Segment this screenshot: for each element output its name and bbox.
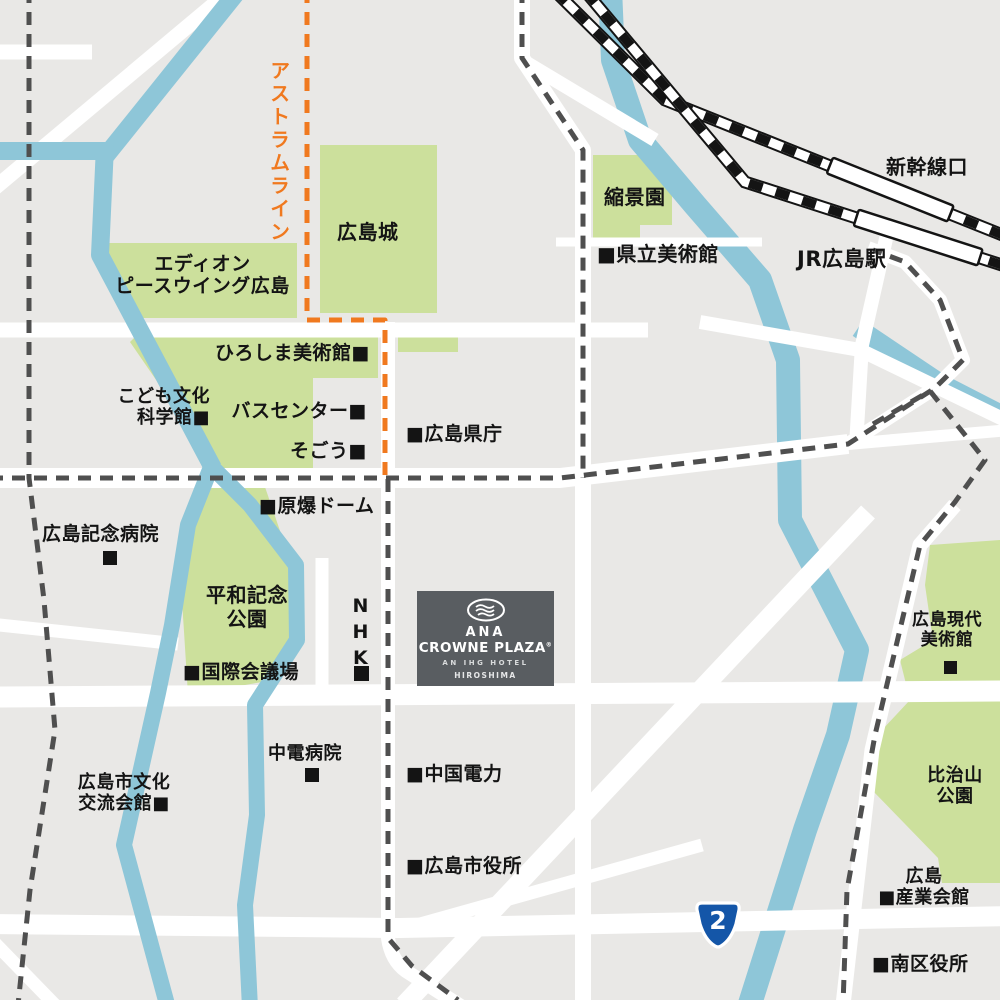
industry-hall-label: 広島 ■産業会館 xyxy=(862,866,986,908)
edion-peace-wing-label: エディオン ピースウイング広島 xyxy=(100,253,305,298)
map-canvas xyxy=(0,0,1000,1000)
hiroshima-castle-label: 広島城 xyxy=(337,221,399,245)
memorial-hospital-label: 広島記念病院 xyxy=(42,523,159,545)
hijiyama-park-label: 比治山 公園 xyxy=(912,765,998,807)
nhk-label: NHK xyxy=(349,595,371,673)
city-hall-label: ■広島市役所 xyxy=(406,855,522,877)
astram-line-label: アストラムライン xyxy=(266,60,290,244)
hiroshima-access-map: アストラムライン 広島城 縮景園 ■県立美術館 新幹線口 JR広島駅 エディオン… xyxy=(0,0,1000,1000)
registered-mark: ® xyxy=(546,642,553,649)
prefectural-office-label: ■広島県庁 xyxy=(406,423,502,445)
hotel-logo-block: ANA CROWNE PLAZA® AN IHG HOTEL HIROSHIMA xyxy=(417,591,554,686)
hotel-location: HIROSHIMA xyxy=(454,671,516,680)
route-number: 2 xyxy=(695,906,741,935)
crowne-plaza-wave-icon xyxy=(465,597,507,623)
chuden-hospital-label: 中電病院 xyxy=(268,743,342,764)
hotel-brand-ana: ANA xyxy=(465,625,505,640)
memorial-hospital-marker xyxy=(103,551,117,565)
bus-center-label: バスセンター■ xyxy=(230,400,367,422)
shukkeien-label: 縮景園 xyxy=(604,186,666,210)
jr-hiroshima-station-label: JR広島駅 xyxy=(797,247,886,272)
peace-memorial-park-label: 平和記念 公園 xyxy=(193,584,301,631)
small-green-area xyxy=(398,335,458,352)
chugoku-electric-label: ■中国電力 xyxy=(406,763,502,785)
chuden-hospital-marker xyxy=(305,768,319,782)
shinkansen-exit-label: 新幹線口 xyxy=(886,156,968,180)
sogo-label: そごう■ xyxy=(228,440,367,462)
nhk-marker xyxy=(354,666,369,681)
culture-exchange-hall-label: 広島市文化 交流会館■ xyxy=(64,772,184,814)
map-background xyxy=(0,0,1000,1000)
minami-ward-office-label: ■南区役所 xyxy=(872,953,968,975)
prefectural-art-museum-label: ■県立美術館 xyxy=(597,243,719,267)
intl-conference-center-label: ■国際会議場 xyxy=(183,661,299,683)
route-2-shield: 2 xyxy=(695,901,741,949)
contemporary-art-museum-marker xyxy=(944,661,957,674)
contemporary-art-museum-label: 広島現代 美術館 xyxy=(902,610,992,650)
children-science-museum-label: こども文化 科学館■ xyxy=(82,386,210,428)
atomic-bomb-dome-label: ■原爆ドーム xyxy=(259,495,374,517)
hotel-tagline-ihg: AN IHG HOTEL xyxy=(442,659,528,667)
hotel-brand-crowne-plaza: CROWNE PLAZA® xyxy=(419,640,553,656)
hiroshima-museum-of-art-label: ひろしま美術館■ xyxy=(205,342,370,364)
